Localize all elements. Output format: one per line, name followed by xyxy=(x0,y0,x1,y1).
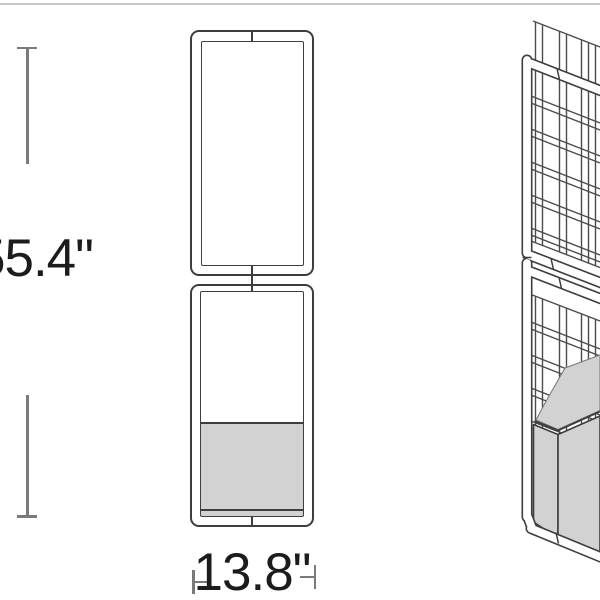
planter-3d xyxy=(534,355,600,552)
lattice-line-h xyxy=(531,169,600,196)
planter-face-right xyxy=(558,416,600,552)
width-label: 13.8" xyxy=(194,546,311,599)
lattice-line-h xyxy=(531,329,600,356)
lattice-line-h xyxy=(531,228,600,255)
lattice-line-h xyxy=(531,195,600,222)
lattice-line-h xyxy=(531,202,600,229)
height-dim-upper-line xyxy=(26,48,29,164)
lattice-line-h xyxy=(531,322,600,349)
height-dim-bottom-tick xyxy=(17,515,37,518)
height-label: 55.4" xyxy=(0,232,93,285)
width-dim-right-stub xyxy=(300,576,315,579)
dimension-diagram: 55.4" 13.8" xyxy=(0,0,600,600)
lattice-line-h xyxy=(531,129,600,156)
lower-frame-inner xyxy=(200,291,304,517)
lattice-line-h xyxy=(531,103,600,130)
upper-frame-inner xyxy=(201,41,304,266)
lattice-line-h xyxy=(531,136,600,163)
lattice-line-h xyxy=(531,162,600,189)
frame-joint-tick-middle xyxy=(251,266,253,291)
lattice-upper xyxy=(531,14,600,268)
frame-joint-tick-bottom xyxy=(251,516,253,527)
frame-joint-tick-top xyxy=(251,30,253,41)
lattice-line-h xyxy=(531,96,600,123)
height-dim-lower-line xyxy=(26,395,29,516)
planter-face-left xyxy=(534,425,559,539)
perspective-view xyxy=(504,0,600,600)
